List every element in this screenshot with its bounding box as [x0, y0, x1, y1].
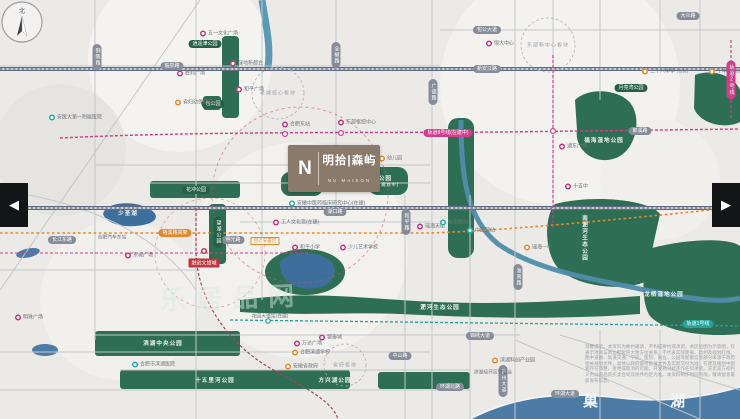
poi-pm: 东城广场 [125, 252, 153, 259]
poi-pm: 十五中 [565, 183, 588, 190]
poi-po: 省妇幼保健院 [175, 99, 213, 106]
map-pin-icon [200, 30, 206, 36]
poi-pm: 湖东广场 [559, 143, 587, 150]
poi-pm: 东部枢纽中心 [338, 119, 376, 126]
map-pin-icon [709, 68, 715, 74]
poi-pt: 枞阳路站 [440, 219, 468, 226]
poi-zone: 老城核心板块 [260, 90, 296, 97]
lake-label: 巢湖 [583, 390, 740, 411]
poi-prbox: 融创文旅城 [188, 259, 219, 268]
poi-road: 环湖北路 [436, 383, 464, 391]
map-pin-icon [285, 363, 291, 369]
poi-park: 月亮湾公园 [614, 84, 647, 92]
poi-txt: 滨湖经开区管委会 [474, 369, 512, 376]
map-pin-icon [292, 349, 298, 355]
poi-road: 包公大道 [473, 26, 501, 34]
poi-po: 瑶海一中 [524, 244, 552, 251]
poi-metrov: 轨道2号线 [727, 61, 736, 100]
next-image-button[interactable]: ▶ [712, 183, 740, 227]
poi-pt: 安医大第一附属医院 [49, 114, 102, 121]
poi-road: 湖口路 [323, 208, 346, 216]
project-name: 明拾|森屿 [322, 155, 376, 167]
map-pin-icon [294, 340, 300, 346]
map-pin-icon [559, 143, 565, 149]
map-pin-icon [236, 86, 242, 92]
poi-pr [201, 248, 207, 254]
map-pin-icon [175, 99, 181, 105]
poi-road: 大众路 [676, 12, 699, 20]
poi-pm: 银泰城 [319, 334, 342, 341]
map-pin-icon [273, 219, 279, 225]
poi-pt: 合肥市滨湖医院 [132, 361, 175, 368]
poi-po: 滨湖科创产业园 [492, 357, 535, 364]
poi-park: 花冲公园 [182, 186, 210, 194]
poi-po: 幼儿园 [379, 155, 402, 162]
poi-zone: 省府板块 [333, 362, 357, 369]
poi-roadv: 淮南路 [514, 264, 523, 290]
poi-obox: 回迁安置区 [251, 237, 280, 245]
map-pin-icon [524, 244, 530, 250]
map-pin-icon [15, 314, 21, 320]
previous-image-button[interactable]: ◀ [0, 183, 28, 227]
poi-pm: 少儿艺术学校 [340, 244, 378, 251]
poi-white: 淝河生态公园 [420, 303, 460, 311]
poi-white: 福海湿地公园 [584, 136, 624, 144]
poi-road: 明光路 [221, 236, 244, 244]
poi-pm: 合肥东站 [282, 121, 310, 128]
poi-metro: 轨道8号线(在建中) [423, 129, 472, 137]
poi-white: 十五里河公园 [195, 376, 235, 384]
poi-road: 环湖大道 [551, 390, 579, 398]
poi-po: 三十八中学(在建) [642, 68, 688, 75]
poi-railt: 轨道1号线 [683, 320, 714, 328]
poi-po: 十中(规划) [709, 68, 740, 75]
map-pin-icon [292, 244, 298, 250]
poi-pt: 安徽中医药临床研究中心(在建) [289, 200, 365, 207]
poi-pm: 五一文化广场 [200, 30, 238, 37]
poi-roadv: 广德路 [429, 79, 438, 105]
poi-roadv: 铜陵路 [93, 44, 102, 70]
poi-pt: 中医院站 [467, 227, 495, 234]
poi-pm: 明珠广场 [15, 314, 43, 321]
poi-road: 中山路 [388, 352, 411, 360]
poi-pm: 恒大中心 [486, 40, 514, 47]
poi-pm: 绿地新都会 [230, 60, 263, 67]
map-pin-icon [467, 227, 473, 233]
poi-pm: 和平小学 [292, 244, 320, 251]
location-map: 北 乐居品网 铜陵路临泉路全椒路包公大道新安江路大众路郎溪路广德路湖口路和平路长… [0, 0, 740, 419]
poi-txt: 花园大道站(在建) [252, 313, 289, 320]
map-pin-icon [289, 200, 295, 206]
poi-pm: 和平广场 [236, 86, 264, 93]
left-arrow-icon: ◀ [9, 197, 19, 213]
map-pin-icon [319, 334, 325, 340]
poi-road: 郎溪路 [628, 127, 651, 135]
map-pin-icon [201, 248, 207, 254]
map-pin-icon [177, 70, 183, 76]
poi-po: 安徽省政府 [285, 363, 318, 370]
map-pin-icon [417, 223, 423, 229]
map-pin-icon [282, 121, 288, 127]
project-monogram: N [292, 152, 319, 185]
poi-roadv: 和平路 [402, 209, 411, 235]
map-pin-icon [642, 68, 648, 74]
map-pin-icon [338, 119, 344, 125]
map-pin-icon [49, 114, 55, 120]
map-pin-icon [132, 361, 138, 367]
poi-po: 合肥滨湖学校 [292, 349, 330, 356]
poi-white: 公园(规划中) [379, 174, 399, 188]
poi-txt: 合肥汽车东站 [98, 234, 127, 241]
poi-road: 锦绣大道 [466, 332, 494, 340]
poi-parkv: 望湖公园 [214, 216, 223, 248]
map-pin-icon [230, 60, 236, 66]
poi-pm: 万达广场 [294, 340, 322, 347]
poi-zone: 东部新中心板块 [527, 42, 569, 49]
poi-white: 方兴湖公园 [319, 376, 352, 384]
map-pin-icon [486, 40, 492, 46]
disclaimer-text: 温馨提示：本资料为要约邀请，不构成要约或承诺。本区位图为示意图，仅表示项目与周边… [585, 344, 735, 383]
poi-white: 少荃湖 [118, 209, 138, 217]
poi-whitev: 南淝河生态公园 [580, 215, 588, 261]
map-pin-icon [565, 183, 571, 189]
poi-hw: 裕溪路高架 [158, 229, 191, 237]
map-pin-icon [340, 244, 346, 250]
map-pin-icon [440, 219, 446, 225]
poi-park: 逍遥津公园 [188, 40, 221, 48]
project-logo-card: N 明拾|森屿 NU MAISON [288, 145, 380, 192]
map-pin-icon [125, 252, 131, 258]
poi-road: 长江东路 [48, 236, 76, 244]
right-arrow-icon: ▶ [721, 197, 731, 213]
poi-pm: 胜利广场 [177, 70, 205, 77]
poi-white: 滨湖中央公园 [143, 339, 183, 347]
project-name-en: NU MAISON [328, 178, 372, 183]
poi-roadv: 全椒路 [332, 42, 341, 68]
poi-white: 公园 [345, 273, 358, 281]
poi-white: 龙栖湿地公园 [644, 290, 684, 298]
poi-pm: 工人文化宫(在建) [273, 219, 319, 226]
map-pin-icon [492, 357, 498, 363]
poi-road: 新安江路 [473, 65, 501, 73]
